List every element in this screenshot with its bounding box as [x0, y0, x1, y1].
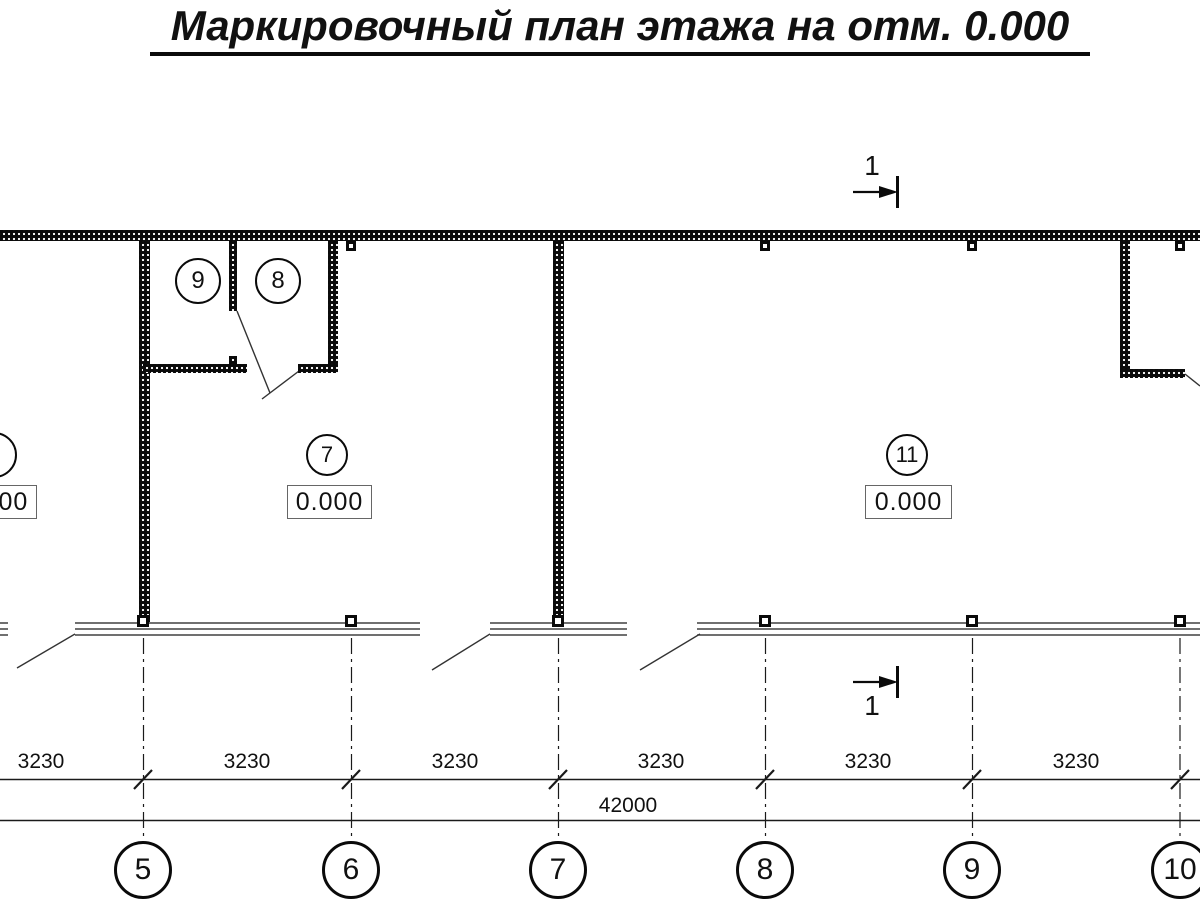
wall-axis-7 — [553, 241, 564, 622]
room-number-label: 8 — [271, 267, 284, 295]
sill-marker — [1174, 615, 1186, 627]
dim-3230: 3230 — [1036, 750, 1116, 774]
wall-right-vertical — [1120, 241, 1130, 378]
partition-room9-room8 — [229, 241, 237, 311]
dim-3230: 3230 — [207, 750, 287, 774]
axis-number: 6 — [343, 853, 360, 887]
wall-axis-5 — [139, 241, 150, 622]
axis-bubble-9: 9 — [943, 841, 1001, 899]
wall-room8-bottom-stub — [298, 364, 338, 373]
axis-number: 7 — [550, 853, 567, 887]
axis-bubble-6: 6 — [322, 841, 380, 899]
axis-bubble-5: 5 — [114, 841, 172, 899]
elevation-value: 0.000 — [0, 488, 28, 517]
window-sill-lines — [0, 623, 1200, 635]
sill-marker — [552, 615, 564, 627]
dim-total-42000: 42000 — [578, 794, 678, 818]
sill-marker — [137, 615, 149, 627]
door-jamb-stub — [229, 356, 237, 364]
section-mark-bottom-label: 1 — [850, 690, 894, 722]
axis-number: 9 — [964, 853, 981, 887]
sill-marker — [759, 615, 771, 627]
room-number-label: 9 — [191, 267, 204, 295]
elevation-box-room7: 0.000 — [287, 485, 372, 519]
room-number-7: 7 — [306, 434, 348, 476]
column-marker — [967, 241, 977, 251]
axis-bubble-8: 8 — [736, 841, 794, 899]
sill-marker — [966, 615, 978, 627]
elevation-value: 0.000 — [875, 488, 943, 517]
room-number-label: 7 — [321, 442, 333, 468]
column-marker — [760, 241, 770, 251]
section-mark-top-label: 1 — [850, 150, 894, 182]
floor-plan-drawing: Маркировочный план этажа на отм. 0.000 — [0, 0, 1200, 900]
room-number-11: 11 — [886, 434, 928, 476]
axis-bubble-7: 7 — [529, 841, 587, 899]
dim-3230: 3230 — [828, 750, 908, 774]
wall-right-bottom — [1120, 369, 1185, 378]
dim-3230: 3230 — [1, 750, 81, 774]
sill-marker — [345, 615, 357, 627]
axis-number: 8 — [757, 853, 774, 887]
room-number-8: 8 — [255, 258, 301, 304]
exterior-top-wall — [0, 230, 1200, 241]
plan-linework — [0, 0, 1200, 900]
elevation-box-left-partial: 0.000 — [0, 485, 37, 519]
column-marker — [346, 241, 356, 251]
wall-room8-right — [328, 241, 338, 373]
axis-bubble-10: 10 — [1151, 841, 1200, 899]
column-marker — [1175, 241, 1185, 251]
wall-room9-bottom — [143, 364, 247, 373]
axis-number: 10 — [1163, 853, 1196, 887]
elevation-box-room11: 0.000 — [865, 485, 952, 519]
dim-3230: 3230 — [415, 750, 495, 774]
room-number-label: 11 — [896, 442, 919, 468]
room-number-9: 9 — [175, 258, 221, 304]
dim-3230: 3230 — [621, 750, 701, 774]
elevation-value: 0.000 — [296, 488, 364, 517]
axis-number: 5 — [135, 853, 152, 887]
section-arrows — [853, 176, 898, 698]
